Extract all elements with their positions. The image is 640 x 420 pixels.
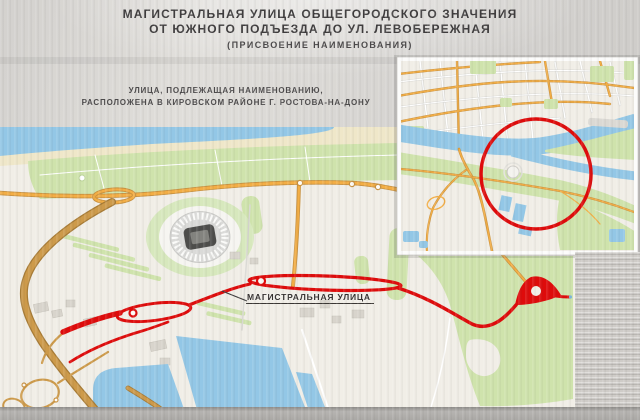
rostov-arena-stadium xyxy=(146,197,254,277)
road-junction-node xyxy=(130,310,137,317)
road-junction-node xyxy=(375,184,380,189)
page-title: МАГИСТРАЛЬНАЯ УЛИЦА ОБЩЕГОРОДСКОГО ЗНАЧЕ… xyxy=(0,7,640,51)
caption-line-2: РАСПОЛОЖЕНА В КИРОВСКОМ РАЙОНЕ Г. РОСТОВ… xyxy=(0,97,452,109)
background-side-texture xyxy=(575,252,640,407)
footer-bar xyxy=(0,407,640,420)
inset-stadium-marker xyxy=(504,163,522,181)
road-junction-node xyxy=(257,277,265,285)
road-junction-node xyxy=(349,181,354,186)
title-line-1: МАГИСТРАЛЬНАЯ УЛИЦА ОБЩЕГОРОДСКОГО ЗНАЧЕ… xyxy=(0,7,640,22)
caption-line-1: УЛИЦА, ПОДЛЕЖАЩАЯ НАИМЕНОВАНИЮ, xyxy=(0,85,452,97)
road-label: МАГИСТРАЛЬНАЯ УЛИЦА xyxy=(246,292,374,304)
map-caption: УЛИЦА, ПОДЛЕЖАЩАЯ НАИМЕНОВАНИЮ, РАСПОЛОЖ… xyxy=(0,85,452,109)
slide: МАГИСТРАЛЬНАЯ УЛИЦА ОБЩЕГОРОДСКОГО ЗНАЧЕ… xyxy=(0,0,640,420)
title-line-2: ОТ ЮЖНОГО ПОДЪЕЗДА ДО УЛ. ЛЕВОБЕРЕЖНАЯ xyxy=(0,22,640,37)
road-junction-node xyxy=(297,180,302,185)
title-line-3: (ПРИСВОЕНИЕ НАИМЕНОВАНИЯ) xyxy=(0,40,640,51)
map-graphic xyxy=(0,0,640,420)
